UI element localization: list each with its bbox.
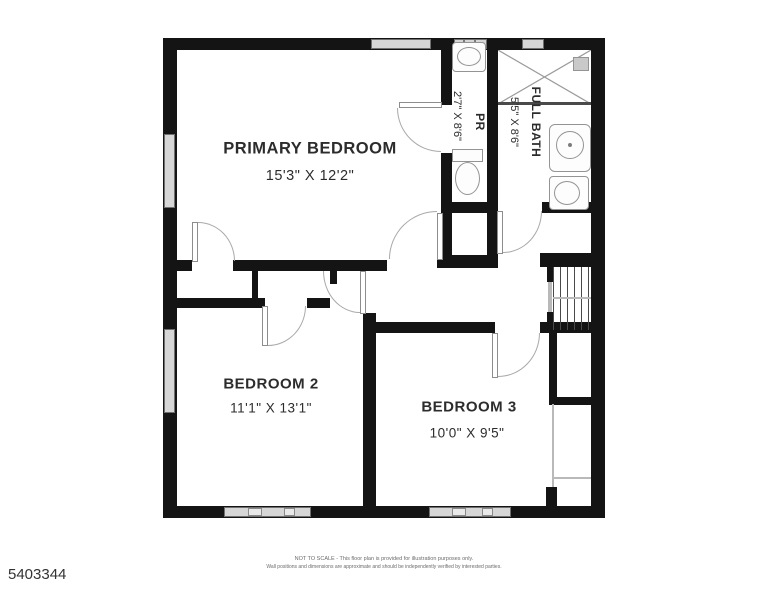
floor-plan: PRIMARY BEDROOM 15'3" X 12'2" BEDROOM 2 … — [0, 0, 768, 593]
window — [164, 329, 175, 413]
room-dims-primary: 15'3" X 12'2" — [266, 168, 354, 184]
window — [164, 134, 175, 208]
wall-bedroom2-north-2 — [307, 298, 330, 308]
disclaimer-line-2: Wall positions and dimensions are approx… — [0, 564, 768, 570]
room-dims-bedroom3: 10'0" X 9'5" — [430, 426, 505, 441]
window — [522, 39, 544, 49]
wall-bedroom2-north-1 — [163, 298, 265, 308]
door-arc — [389, 211, 437, 259]
disclaimer-line-1: NOT TO SCALE - This floor plan is provid… — [0, 556, 768, 562]
room-label-bedroom2: BEDROOM 2 — [223, 376, 318, 393]
pr-toilet-bowl — [455, 162, 480, 195]
sink-drain — [568, 143, 572, 147]
door-arc — [397, 108, 441, 152]
room-dims-pr: 2'7" X 8'6" — [451, 91, 463, 141]
shower-head — [573, 57, 589, 71]
window — [371, 39, 431, 49]
room-dims-bedroom2: 11'1" X 13'1" — [230, 401, 312, 416]
room-label-pr: PR — [473, 113, 487, 131]
door-leaf — [437, 213, 443, 260]
stair-rail — [553, 297, 591, 299]
bath-toilet-bowl — [554, 181, 580, 205]
room-label-primary: PRIMARY BEDROOM — [223, 140, 396, 159]
pr-toilet-tank — [452, 149, 483, 162]
pr-sink-bowl — [457, 47, 481, 66]
door-leaf — [360, 271, 366, 314]
window — [224, 507, 311, 517]
door-arc — [198, 222, 235, 261]
wall-outer-left — [163, 38, 177, 518]
room-label-bedroom3: BEDROOM 3 — [421, 399, 516, 416]
door-arc — [268, 306, 306, 346]
stair-opening — [548, 282, 552, 312]
window — [429, 507, 511, 517]
wall-bedroom-divider — [363, 313, 376, 518]
wall-hall-north-1 — [163, 260, 192, 271]
room-dims-bath: 5'5" X 8'6" — [508, 97, 520, 147]
door-arc — [503, 211, 542, 253]
wall-bedroom3-north-1 — [376, 322, 495, 333]
wall-pr-south — [441, 202, 498, 213]
wall-linen-south — [437, 255, 495, 268]
wall-closet-divider — [252, 271, 258, 298]
room-label-bath: FULL BATH — [529, 87, 543, 158]
wall-bedroom3-north-2 — [540, 322, 591, 333]
wall-outer-right — [591, 38, 605, 518]
wall-bedroom3-closet-west — [549, 333, 557, 397]
wall-hall-north-2 — [233, 260, 387, 271]
wall-bedroom3-closet-south — [549, 397, 591, 405]
wall-stair-top — [540, 253, 591, 267]
door-arc — [498, 333, 540, 377]
